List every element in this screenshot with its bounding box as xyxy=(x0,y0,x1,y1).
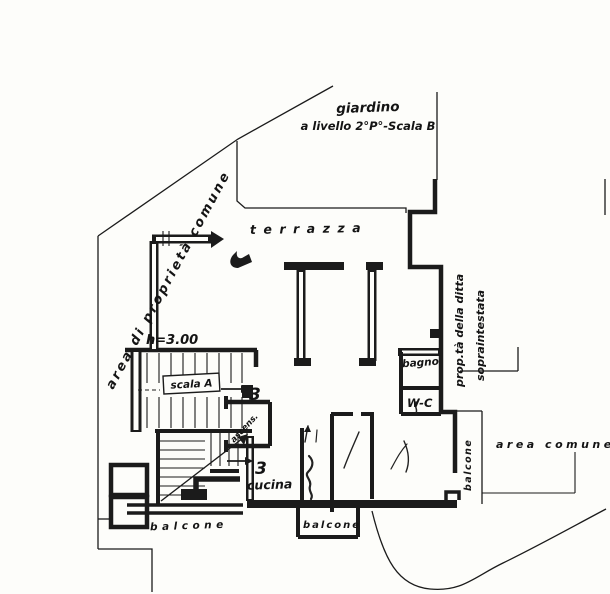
terrace-hook-mark xyxy=(230,251,252,268)
illegible-room-scribble xyxy=(307,456,313,499)
wc-label: W-C xyxy=(407,396,433,410)
giardino-level-label: a livello 2°P°-Scala B xyxy=(301,119,436,133)
terrazza-label: terrazza xyxy=(250,220,368,237)
floorplan-scan: giardino a livello 2°P°-Scala B area di … xyxy=(0,0,610,594)
balcone-s-label: balcone xyxy=(303,520,361,531)
scala-a-tag: scala A xyxy=(163,373,220,394)
prop-ditta-line1: prop.tà della ditta xyxy=(453,274,466,388)
flight-number-2: 3 xyxy=(255,459,267,479)
balcone-sw-label: balcone xyxy=(150,519,228,534)
bagno-label: bagno xyxy=(402,356,440,371)
height-annotation: h=3.00 xyxy=(146,333,198,348)
area-comune-label: area comune xyxy=(496,438,610,451)
prop-ditta-line2: sopraintestata xyxy=(474,290,487,381)
cucina-label: cucina xyxy=(247,476,293,493)
path-curve-line xyxy=(372,509,606,589)
giardino-label: giardino xyxy=(336,99,400,117)
flight-number-1: 3 xyxy=(249,385,261,405)
area-proprieta-comune-label: area di proprietà comune xyxy=(103,168,234,392)
svg-text:scala A: scala A xyxy=(170,377,213,391)
balcone-e-label: balcone xyxy=(463,439,474,491)
floor-plan-drawing: giardino a livello 2°P°-Scala B area di … xyxy=(0,0,610,594)
